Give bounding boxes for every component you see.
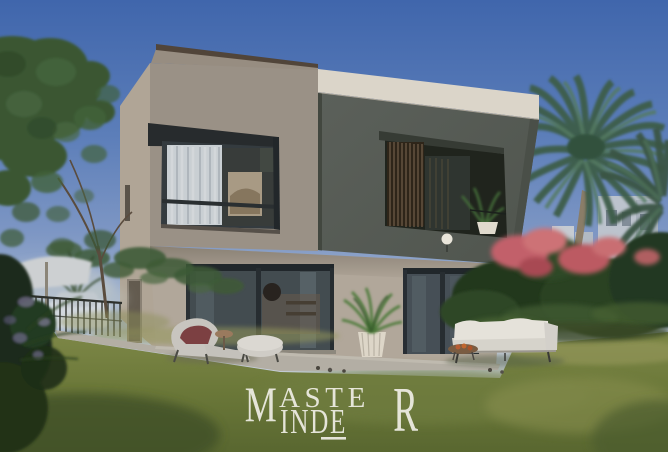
svg-text:R: R <box>393 375 418 446</box>
svg-text:INDE: INDE <box>280 402 347 441</box>
svg-text:M: M <box>245 377 277 432</box>
